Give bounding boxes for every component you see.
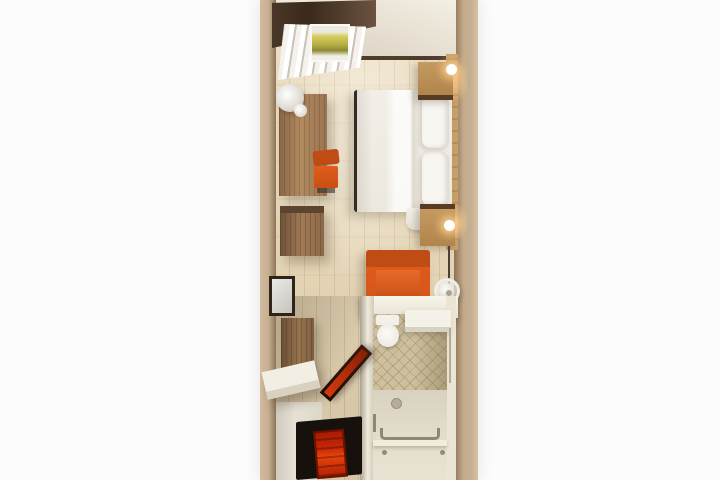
dresser-cabinet [280, 206, 324, 256]
floor-plan-render [260, 0, 478, 480]
wall-lamp-top [446, 64, 457, 75]
shower-curb [373, 440, 447, 446]
shower-side-bar [373, 414, 376, 432]
bathroom-left-wall [360, 296, 374, 480]
towel-rail [449, 328, 451, 383]
pillow-bottom [422, 152, 449, 206]
left-wall [260, 0, 276, 480]
wall-mirror [269, 276, 295, 316]
shower-drain [391, 398, 402, 409]
desk-chair-legs [317, 188, 335, 193]
window-landscape-view [310, 24, 350, 62]
toilet-bowl [377, 324, 399, 347]
desk-decor-cup [294, 104, 307, 117]
armchair-backrest [366, 250, 430, 267]
desk-chair-backrest [312, 149, 339, 167]
red-rug [313, 429, 348, 480]
render-canvas [0, 0, 720, 480]
desk-chair-seat [314, 166, 338, 188]
vanity-shelf [405, 310, 451, 332]
floor-fixture-dot [382, 450, 387, 455]
wall-lamp-bottom [444, 220, 455, 231]
desk-chair [313, 148, 339, 194]
shower-grab-bar [380, 428, 440, 440]
pillow-top [422, 96, 449, 148]
floor-fixture-dot [440, 450, 445, 455]
